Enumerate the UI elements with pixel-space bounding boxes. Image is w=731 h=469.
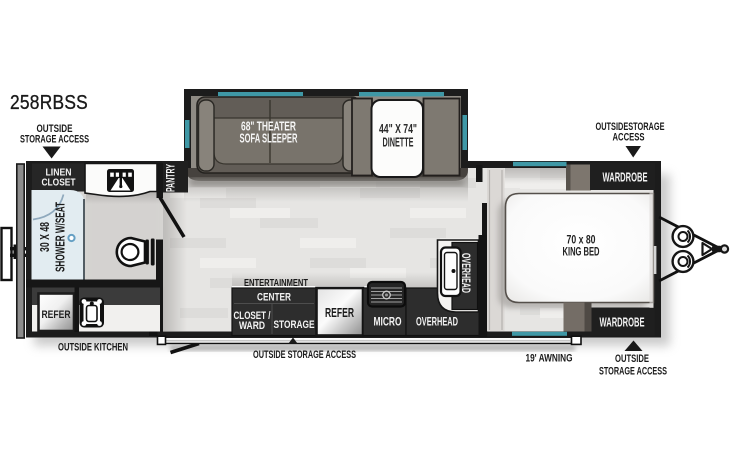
svg-text:OUTSIDE KITCHEN: OUTSIDE KITCHEN: [58, 342, 128, 354]
svg-text:OVERHEAD: OVERHEAD: [416, 317, 458, 329]
svg-text:KING BED: KING BED: [563, 245, 600, 259]
svg-text:STORAGE: STORAGE: [274, 319, 315, 331]
svg-text:WARDROBE: WARDROBE: [603, 171, 648, 185]
svg-text:WARD: WARD: [239, 320, 265, 332]
svg-text:WARDROBE: WARDROBE: [600, 316, 645, 330]
svg-text:MICRO: MICRO: [374, 317, 402, 329]
svg-text:CENTER: CENTER: [257, 292, 291, 304]
svg-text:PANTRY: PANTRY: [166, 164, 178, 192]
svg-text:STORAGE ACCESS: STORAGE ACCESS: [20, 133, 89, 145]
svg-text:SOFA SLEEPER: SOFA SLEEPER: [240, 131, 298, 146]
svg-text:REFER: REFER: [325, 306, 354, 320]
svg-text:SHOWER W/SEAT: SHOWER W/SEAT: [54, 202, 68, 272]
svg-text:OUTSIDE: OUTSIDE: [615, 353, 649, 365]
svg-text:19' AWNING: 19' AWNING: [526, 353, 573, 365]
svg-text:ACCESS: ACCESS: [613, 132, 645, 144]
svg-text:258RBSS: 258RBSS: [10, 91, 88, 114]
svg-text:OUTSIDE STORAGE ACCESS: OUTSIDE STORAGE ACCESS: [253, 349, 356, 361]
svg-text:REFER: REFER: [42, 309, 71, 321]
svg-text:STORAGE ACCESS: STORAGE ACCESS: [599, 366, 667, 378]
svg-text:DINETTE: DINETTE: [383, 135, 414, 150]
svg-text:ENTERTAINMENT: ENTERTAINMENT: [244, 277, 308, 289]
svg-text:30 X 48: 30 X 48: [38, 222, 52, 252]
svg-text:CLOSET: CLOSET: [42, 177, 76, 189]
